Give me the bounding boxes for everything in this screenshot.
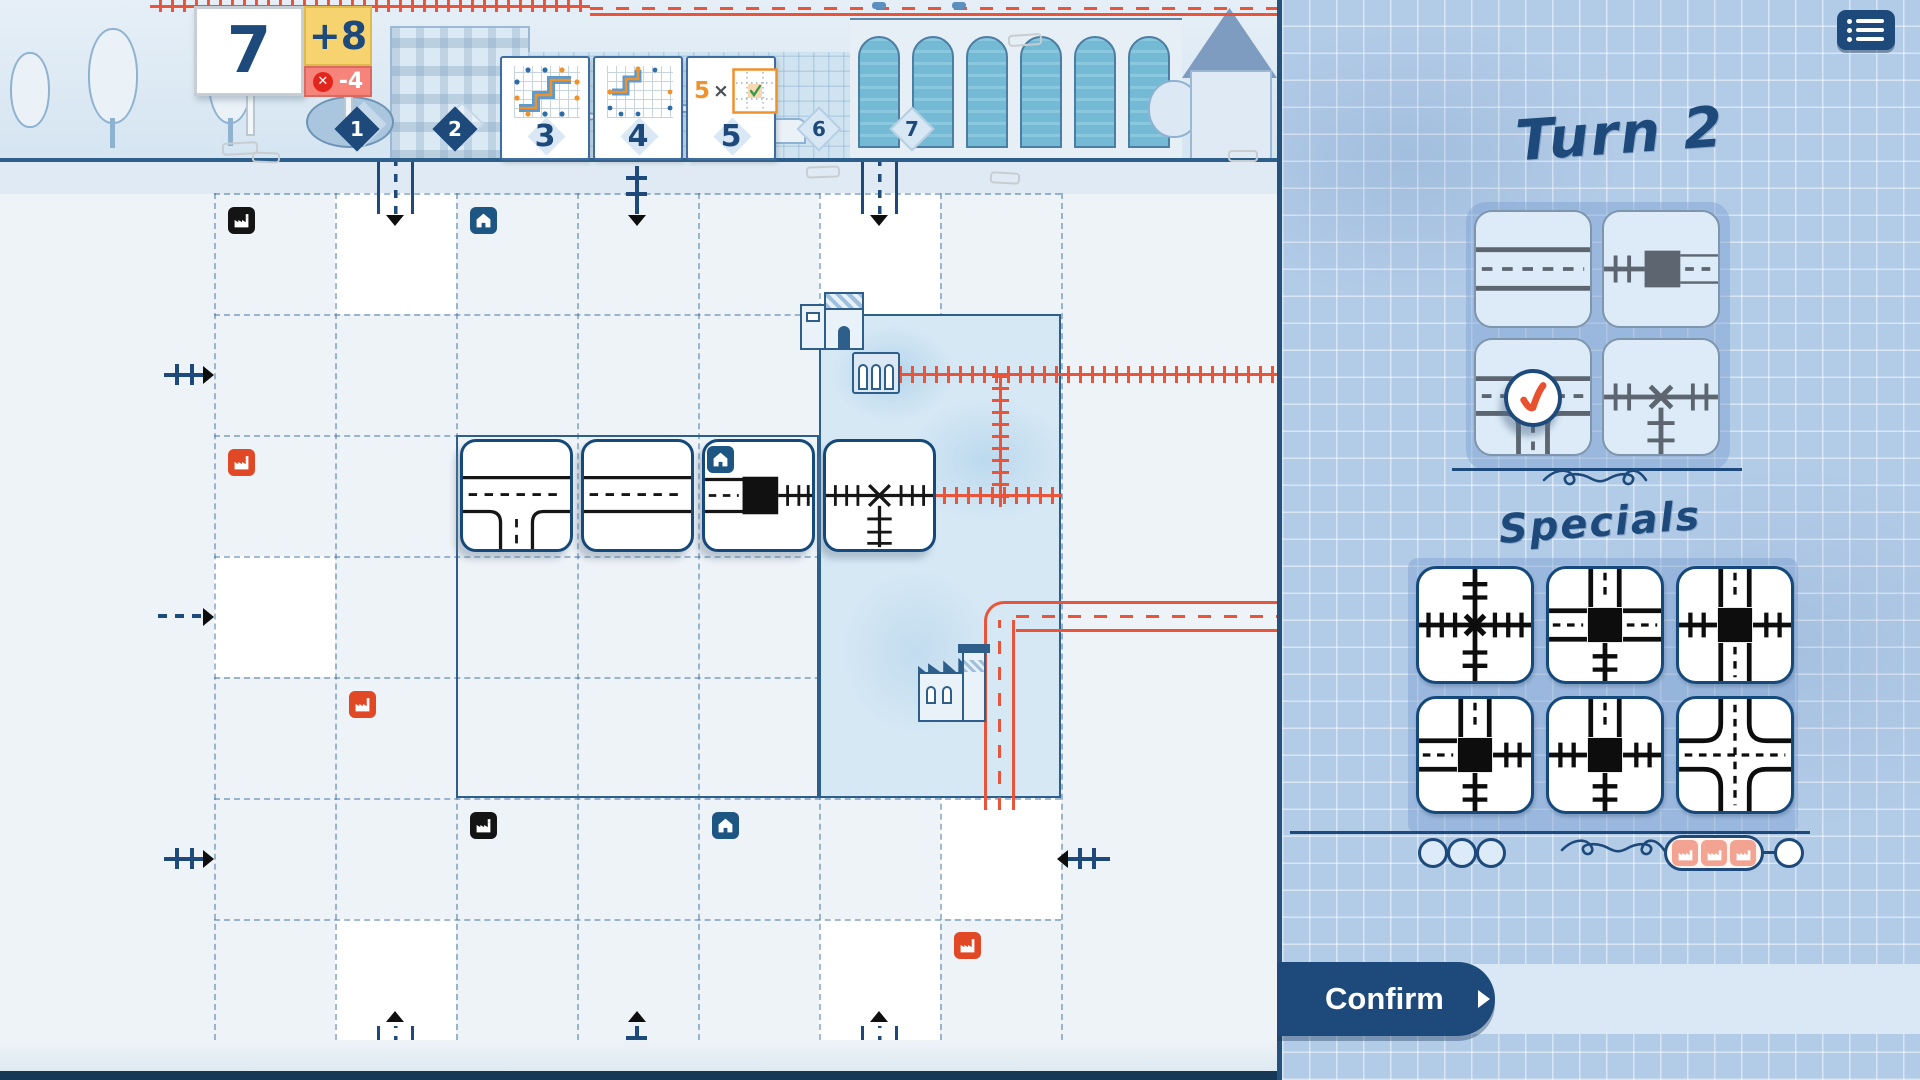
factory-icon <box>470 812 497 839</box>
menu-list-icon <box>1847 19 1895 24</box>
rail-tick <box>626 176 647 180</box>
exit-arrow-right <box>203 366 214 384</box>
special-road-crossroad[interactable] <box>1676 696 1794 814</box>
red-rail-route <box>934 487 1062 504</box>
tree-trunk-art <box>110 118 115 148</box>
special-rail-crossroad-x[interactable] <box>1416 566 1534 684</box>
factory-token-icon <box>1730 840 1756 866</box>
exit-arrow-right <box>203 850 214 868</box>
stone-doodle <box>1228 150 1258 162</box>
x-circle-icon: ✕ <box>313 72 333 92</box>
round-number: 1 <box>350 117 364 141</box>
grid-line <box>214 798 1061 800</box>
round-number: 6 <box>812 117 826 141</box>
score-total: 7 <box>227 14 272 88</box>
tree-art <box>88 28 138 124</box>
flourish-ornament <box>1558 836 1668 862</box>
house-icon <box>470 207 497 234</box>
exit-arrow-up <box>628 1011 646 1022</box>
placed-tile-rail-t-crossing[interactable] <box>823 439 936 552</box>
factory-window-art <box>942 686 952 704</box>
church-window-art <box>806 312 820 322</box>
exit-arrow-down <box>870 215 888 226</box>
church-tower-art <box>800 304 826 350</box>
exit-road-top <box>861 162 898 214</box>
tree-art <box>10 52 50 128</box>
house-art <box>1190 70 1272 162</box>
house-roof-art <box>1182 8 1277 78</box>
exit-arrow-right <box>203 608 214 626</box>
objective-diagram <box>514 66 580 118</box>
special-road-rail-corner-station[interactable] <box>1416 696 1534 814</box>
stone-doodle <box>1008 33 1043 47</box>
house-icon <box>712 812 739 839</box>
rail-tick <box>175 364 179 385</box>
exit-arrow-up <box>386 1011 404 1022</box>
placed-tile-road-straight[interactable] <box>581 439 694 552</box>
bridge-arch-art <box>871 364 881 390</box>
menu-button[interactable] <box>1837 10 1895 50</box>
card-number: 5 <box>688 119 774 154</box>
exit-road-left <box>158 614 204 618</box>
factory-token-icon <box>1672 840 1698 866</box>
stone-doodle <box>806 165 840 178</box>
rail-tick <box>190 364 194 385</box>
factory-tower-cap-art <box>958 644 990 653</box>
stone-doodle <box>990 171 1021 185</box>
rail-tick <box>1092 848 1096 869</box>
objective-card-4: 4 <box>593 56 683 160</box>
grid-line <box>335 193 337 1040</box>
factory-tower-pattern-art <box>964 660 984 672</box>
rail-tick <box>175 848 179 869</box>
aqueduct-arch <box>1020 36 1062 148</box>
scoreboard-post <box>246 94 255 136</box>
placed-tile-road-t-junction[interactable] <box>460 439 573 552</box>
factory-icon-red <box>954 932 981 959</box>
church-door-art <box>838 326 850 348</box>
factory-icon <box>228 207 255 234</box>
rail-tick <box>626 1036 647 1040</box>
times-symbol: × <box>713 80 729 102</box>
checked-cell-grid <box>732 68 778 114</box>
exit-arrow-down <box>628 215 646 226</box>
factory-icon-red <box>349 691 376 718</box>
board-bottom-fade <box>0 1040 1277 1073</box>
special-road-through-rail-station[interactable] <box>1546 566 1664 684</box>
die-road-straight[interactable] <box>1474 210 1592 328</box>
score-total-box: 7 <box>194 6 304 96</box>
confirm-label: Confirm <box>1325 981 1444 1017</box>
aqueduct-arch <box>966 36 1008 148</box>
objective-diagram: 5 × <box>694 68 778 114</box>
exit-rail-top <box>635 166 639 214</box>
special-road-rail-t-station[interactable] <box>1546 696 1664 814</box>
game-board-area: 7 +8 ✕ -4 1 2 3 <box>0 0 1277 1080</box>
die-station-rail-road[interactable] <box>1602 210 1720 328</box>
red-rail-route <box>866 366 1277 383</box>
grid-line <box>214 919 1061 921</box>
church-roof-art <box>826 294 862 310</box>
die-rail-t-crossing[interactable] <box>1602 338 1720 456</box>
rail-tick <box>190 848 194 869</box>
score-bonus: +8 <box>309 14 367 58</box>
car-art <box>872 2 886 9</box>
exit-arrow-left <box>1057 850 1068 868</box>
special-use-slot <box>1418 838 1448 868</box>
board-cell-highlight[interactable] <box>940 798 1061 919</box>
play-arrow-icon <box>1478 990 1490 1008</box>
banner-red-road-art <box>590 0 1277 16</box>
special-use-slot <box>1447 838 1477 868</box>
factory-icon-red <box>228 449 255 476</box>
exit-rail-right <box>1066 857 1110 861</box>
card-number: 4 <box>595 119 681 154</box>
red-road-route <box>1016 601 1277 632</box>
score-penalty-box: ✕ -4 <box>304 66 372 97</box>
house-icon <box>707 446 734 473</box>
table-edge <box>0 1071 1277 1080</box>
round-number: 7 <box>905 117 919 141</box>
rail-tick <box>626 192 647 196</box>
objective-card-5: 5 × 5 <box>686 56 776 160</box>
aqueduct-arch <box>1074 36 1116 148</box>
objective-card-3: 3 <box>500 56 590 160</box>
score-bonus-box: +8 <box>304 6 372 66</box>
special-use-slot <box>1476 838 1506 868</box>
factory-token-icon <box>1701 840 1727 866</box>
factory-token-tray <box>1664 835 1764 871</box>
car-art <box>952 2 966 9</box>
factory-use-slot <box>1774 838 1804 868</box>
exit-arrow-down <box>386 215 404 226</box>
special-rail-through-road-station[interactable] <box>1676 566 1794 684</box>
factory-window-art <box>926 686 936 704</box>
bridge-arch-art <box>884 364 894 390</box>
objective-diagram <box>607 66 673 118</box>
rail-tick <box>1078 848 1082 869</box>
multiplier-value: 5 <box>694 78 710 104</box>
confirm-button[interactable]: Confirm <box>1277 962 1495 1036</box>
divider-line <box>1290 831 1810 834</box>
bridge-arch-art <box>858 364 868 390</box>
exit-arrow-up <box>870 1011 888 1022</box>
score-penalty: -4 <box>339 69 363 94</box>
card-number: 3 <box>502 119 588 154</box>
flourish-ornament <box>1540 466 1650 492</box>
exit-road-top <box>377 162 414 214</box>
round-number: 2 <box>448 117 462 141</box>
board-cell-highlight[interactable] <box>214 556 335 677</box>
stone-doodle <box>252 152 280 164</box>
grid-line <box>214 193 216 1040</box>
